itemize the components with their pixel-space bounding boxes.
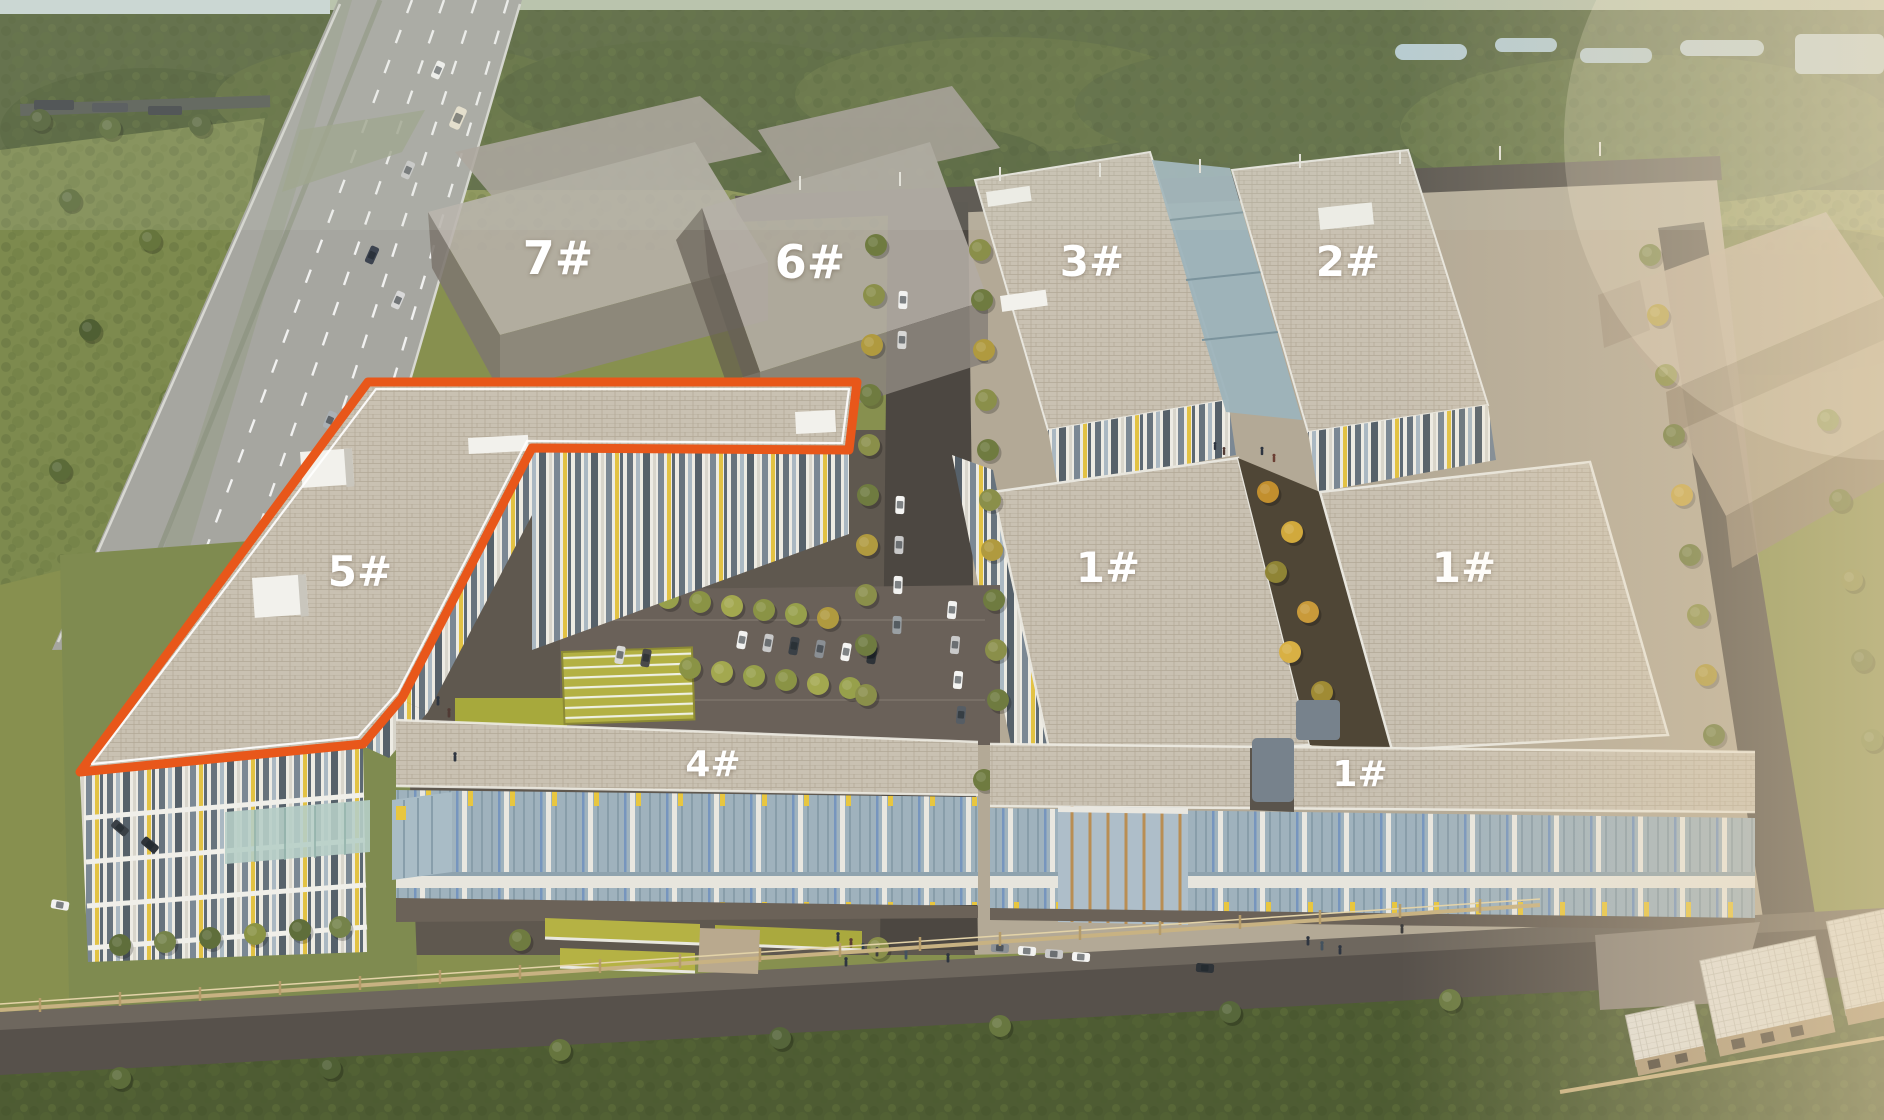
building-2-label: 2# (1316, 237, 1380, 286)
building-4[interactable]: 4# (396, 720, 978, 922)
building-3-label: 3# (1060, 237, 1124, 286)
link-bridge (392, 792, 452, 880)
building-6-label: 6# (775, 235, 846, 289)
building-4-label: 4# (685, 744, 740, 785)
building-1-south-label: 1# (1332, 754, 1387, 795)
building-5-south-block (80, 748, 370, 962)
aerial-campus-rendering: 7# 6# 3# 2# (0, 0, 1884, 1120)
rendering-canvas: 7# 6# 3# 2# (0, 0, 1884, 1120)
building-5-label: 5# (328, 547, 392, 596)
building-1-mid-west-label: 1# (1076, 543, 1140, 592)
building-7-label: 7# (523, 231, 594, 285)
